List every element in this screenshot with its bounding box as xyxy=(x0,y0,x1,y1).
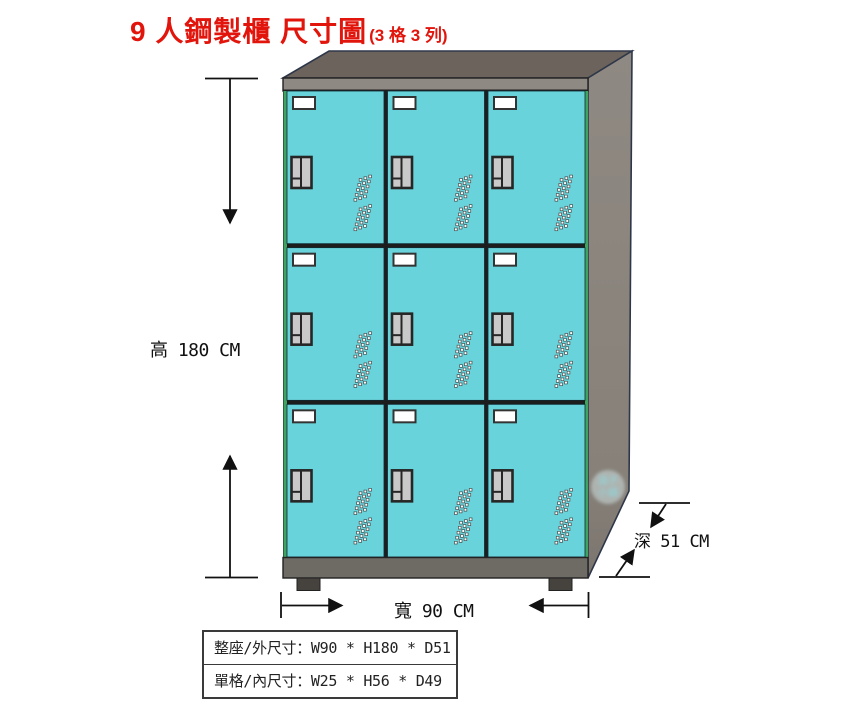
door-name-card-holder xyxy=(494,97,516,109)
vent-hole xyxy=(562,500,565,503)
vent-hole xyxy=(369,518,372,521)
vent-hole xyxy=(464,508,467,511)
vent-hole xyxy=(565,381,568,384)
vent-hole xyxy=(465,333,468,336)
vent-hole xyxy=(561,192,564,195)
vent-hole xyxy=(355,350,358,353)
vent-hole xyxy=(457,502,460,505)
vent-hole xyxy=(567,215,570,218)
vent-hole xyxy=(459,226,462,229)
vent-hole xyxy=(359,179,362,182)
vent-hole xyxy=(469,205,472,208)
vent-hole xyxy=(456,507,459,510)
door-handle xyxy=(493,314,513,345)
locker-door xyxy=(287,91,384,244)
vent-hole xyxy=(469,518,472,521)
vent-hole xyxy=(459,540,462,543)
vent-hole xyxy=(366,342,369,345)
door-handle xyxy=(392,157,412,188)
vent-hole xyxy=(562,187,565,190)
vent-hole xyxy=(562,343,565,346)
vent-hole xyxy=(459,197,462,200)
vent-hole xyxy=(555,512,558,515)
vent-hole xyxy=(465,490,468,493)
vent-hole xyxy=(364,538,367,541)
vent-hole xyxy=(570,205,573,208)
vent-hole xyxy=(561,378,564,381)
vent-hole xyxy=(463,338,466,341)
vent-hole xyxy=(560,197,563,200)
vent-hole xyxy=(567,342,570,345)
vent-hole xyxy=(465,220,468,223)
vent-hole xyxy=(567,498,570,501)
vent-hole xyxy=(464,225,467,228)
vent-hole xyxy=(457,375,460,378)
vent-hole xyxy=(360,192,363,195)
vent-hole xyxy=(359,197,362,200)
vent-hole xyxy=(369,488,372,491)
width-dimension-label: 寬 90 CM xyxy=(394,597,474,623)
frame-right-green-edge xyxy=(585,91,588,557)
diagram-page: 9 人鋼製櫃 尺寸圖(3 格 3 列) xyxy=(0,0,856,720)
door-handle xyxy=(493,470,513,501)
vent-hole xyxy=(455,385,458,388)
vent-hole xyxy=(560,492,563,495)
vent-hole xyxy=(366,185,369,188)
vent-hole xyxy=(456,536,459,539)
vent-hole xyxy=(562,373,565,376)
vent-hole xyxy=(558,502,561,505)
vent-hole xyxy=(559,370,562,373)
vent-hole xyxy=(560,208,563,211)
vent-hole xyxy=(565,538,568,541)
vent-hole xyxy=(467,215,470,218)
door-name-card-holder xyxy=(394,97,416,109)
vent-hole xyxy=(561,221,564,224)
vent-hole xyxy=(459,510,462,513)
vent-hole xyxy=(364,206,367,209)
vent-hole xyxy=(560,365,563,368)
door-name-card-holder xyxy=(494,410,516,422)
vent-hole xyxy=(358,184,361,187)
vent-hole xyxy=(460,179,463,182)
vent-hole xyxy=(560,353,563,356)
vent-hole xyxy=(569,210,572,213)
vent-hole xyxy=(564,525,567,528)
vent-hole xyxy=(556,223,559,226)
vent-hole xyxy=(468,366,471,369)
vent-hole xyxy=(363,182,366,185)
door-handle xyxy=(292,157,312,188)
watermark-line1: 過子 xyxy=(598,475,618,487)
vent-hole xyxy=(465,347,468,350)
vent-hole xyxy=(465,520,468,523)
vent-hole xyxy=(359,335,362,338)
locker-door xyxy=(388,404,485,557)
vent-hole xyxy=(463,525,466,528)
cabinet-base xyxy=(283,558,588,579)
vent-hole xyxy=(364,333,367,336)
vent-hole xyxy=(566,533,569,536)
locker-door xyxy=(488,404,585,557)
vent-hole xyxy=(358,497,361,500)
vent-hole xyxy=(364,490,367,493)
vent-hole xyxy=(364,177,367,180)
vent-hole xyxy=(366,215,369,218)
vent-hole xyxy=(467,185,470,188)
vent-hole xyxy=(354,199,357,202)
vent-hole xyxy=(355,380,358,383)
vent-hole xyxy=(556,380,559,383)
vent-hole xyxy=(567,371,570,374)
vent-hole xyxy=(364,508,367,511)
vent-hole xyxy=(366,498,369,501)
vent-hole xyxy=(359,521,362,524)
vent-hole xyxy=(365,533,368,536)
vent-hole xyxy=(569,366,572,369)
vent-hole xyxy=(358,526,361,529)
vent-hole xyxy=(354,228,357,231)
vent-hole xyxy=(570,488,573,491)
vent-hole xyxy=(364,225,367,228)
vent-hole xyxy=(569,493,572,496)
door-handle xyxy=(493,157,513,188)
vent-hole xyxy=(462,343,465,346)
vent-hole xyxy=(555,228,558,231)
vent-hole xyxy=(468,180,471,183)
vent-hole xyxy=(464,538,467,541)
vent-hole xyxy=(359,510,362,513)
vent-hole xyxy=(464,352,467,355)
locker-door xyxy=(488,248,585,401)
vent-hole xyxy=(458,184,461,187)
watermark-logo: 過子 小舖 xyxy=(591,470,625,504)
vent-hole xyxy=(462,187,465,190)
vent-hole xyxy=(456,380,459,383)
vent-hole xyxy=(558,375,561,378)
vent-hole xyxy=(555,541,558,544)
vent-hole xyxy=(558,531,561,534)
vent-hole xyxy=(355,223,358,226)
vent-hole xyxy=(559,497,562,500)
vent-hole xyxy=(365,503,368,506)
cabinet-top-front-strip xyxy=(283,78,588,91)
vent-hole xyxy=(354,541,357,544)
door-name-card-holder xyxy=(494,254,516,266)
door-handle xyxy=(292,470,312,501)
vent-hole xyxy=(463,182,466,185)
vent-hole xyxy=(458,497,461,500)
vent-hole xyxy=(363,495,366,498)
vent-hole xyxy=(365,220,368,223)
vent-hole xyxy=(561,348,564,351)
vent-hole xyxy=(365,190,368,193)
vent-hole xyxy=(458,340,461,343)
vent-hole xyxy=(461,535,464,538)
vent-hole xyxy=(359,492,362,495)
locker-door xyxy=(488,91,585,244)
vent-hole xyxy=(555,199,558,202)
vent-hole xyxy=(455,228,458,231)
vent-hole xyxy=(566,376,569,379)
vent-hole xyxy=(358,370,361,373)
vent-hole xyxy=(459,353,462,356)
vent-hole xyxy=(462,373,465,376)
vent-hole xyxy=(570,361,573,364)
vent-hole xyxy=(570,332,573,335)
vent-hole xyxy=(559,213,562,216)
locker-door xyxy=(287,248,384,401)
vent-hole xyxy=(555,355,558,358)
vent-hole xyxy=(467,371,470,374)
vent-hole xyxy=(366,528,369,531)
vent-hole xyxy=(468,337,471,340)
vent-hole xyxy=(560,226,563,229)
vent-hole xyxy=(359,208,362,211)
vent-hole xyxy=(468,523,471,526)
vent-hole xyxy=(360,348,363,351)
vent-hole xyxy=(460,335,463,338)
vent-hole xyxy=(355,507,358,510)
vent-hole xyxy=(460,208,463,211)
depth-dimension-label: 深 51 CM xyxy=(634,527,709,552)
vent-hole xyxy=(355,536,358,539)
vent-hole xyxy=(566,347,569,350)
door-handle xyxy=(392,314,412,345)
vent-hole xyxy=(460,365,463,368)
vent-hole xyxy=(369,175,372,178)
vent-hole xyxy=(456,350,459,353)
vent-hole xyxy=(556,507,559,510)
vent-hole xyxy=(361,216,364,219)
vent-hole xyxy=(357,189,360,192)
vent-hole xyxy=(560,179,563,182)
vent-hole xyxy=(364,520,367,523)
vent-hole xyxy=(461,505,464,508)
vent-hole xyxy=(556,350,559,353)
vent-hole xyxy=(559,184,562,187)
vent-hole xyxy=(360,505,363,508)
cabinet-foot-right xyxy=(549,578,572,591)
vent-hole xyxy=(562,216,565,219)
height-dimension-label: 高 180 CM xyxy=(150,336,240,362)
vent-hole xyxy=(570,175,573,178)
vent-hole xyxy=(457,189,460,192)
vent-hole xyxy=(465,363,468,366)
vent-hole xyxy=(564,368,567,371)
vent-hole xyxy=(357,218,360,221)
vent-hole xyxy=(361,343,364,346)
door-name-card-holder xyxy=(394,410,416,422)
vent-hole xyxy=(564,495,567,498)
vent-hole xyxy=(359,383,362,386)
vent-hole xyxy=(560,521,563,524)
door-handle xyxy=(392,470,412,501)
vent-hole xyxy=(359,365,362,368)
vent-hole xyxy=(467,528,470,531)
watermark-line2: 小舖 xyxy=(598,486,618,499)
vent-hole xyxy=(558,189,561,192)
vent-hole xyxy=(558,218,561,221)
vent-hole xyxy=(469,332,472,335)
vent-hole xyxy=(361,500,364,503)
vent-hole xyxy=(467,342,470,345)
vent-hole xyxy=(469,488,472,491)
vent-hole xyxy=(562,530,565,533)
vent-hole xyxy=(457,218,460,221)
vent-hole xyxy=(565,520,568,523)
vent-hole xyxy=(566,503,569,506)
depth-arrow-downleft xyxy=(651,504,666,527)
vent-hole xyxy=(462,216,465,219)
vent-hole xyxy=(461,348,464,351)
vent-hole xyxy=(469,361,472,364)
vent-hole xyxy=(565,225,568,228)
vent-hole xyxy=(361,373,364,376)
vent-hole xyxy=(464,381,467,384)
vent-hole xyxy=(457,531,460,534)
depth-arrow-upright xyxy=(616,550,634,576)
height-dimension xyxy=(205,79,258,578)
vent-hole xyxy=(565,195,568,198)
vent-hole xyxy=(463,495,466,498)
vent-hole xyxy=(359,226,362,229)
vent-hole xyxy=(567,185,570,188)
vent-hole xyxy=(464,195,467,198)
vent-hole xyxy=(566,220,569,223)
vent-hole xyxy=(565,490,568,493)
vent-hole xyxy=(560,383,563,386)
vent-hole xyxy=(465,533,468,536)
vent-hole xyxy=(565,177,568,180)
vent-hole xyxy=(455,512,458,515)
vent-hole xyxy=(462,500,465,503)
locker-door xyxy=(388,91,485,244)
vent-hole xyxy=(465,177,468,180)
vent-hole xyxy=(467,498,470,501)
vent-hole xyxy=(365,376,368,379)
vent-hole xyxy=(455,199,458,202)
vent-hole xyxy=(369,361,372,364)
vent-hole xyxy=(569,523,572,526)
vent-hole xyxy=(360,221,363,224)
vent-hole xyxy=(368,210,371,213)
door-name-card-holder xyxy=(293,97,315,109)
vent-hole xyxy=(565,363,568,366)
vent-hole xyxy=(560,540,563,543)
vent-hole xyxy=(465,376,468,379)
vent-hole xyxy=(458,370,461,373)
vent-hole xyxy=(465,190,468,193)
vent-hole xyxy=(357,375,360,378)
vent-hole xyxy=(459,383,462,386)
vent-hole xyxy=(567,528,570,531)
vent-hole xyxy=(468,210,471,213)
spec-row-inner-size: 單格/內尺寸：W25 * H56 * D49 xyxy=(204,664,456,697)
vent-hole xyxy=(359,353,362,356)
locker-door xyxy=(287,404,384,557)
vent-hole xyxy=(457,345,460,348)
locker-door xyxy=(388,248,485,401)
vent-hole xyxy=(570,518,573,521)
vent-hole xyxy=(455,355,458,358)
cabinet-foot-left xyxy=(297,578,320,591)
vent-hole xyxy=(463,211,466,214)
vent-hole xyxy=(364,195,367,198)
vent-hole xyxy=(364,363,367,366)
vent-hole xyxy=(560,335,563,338)
vent-hole xyxy=(369,332,372,335)
vent-hole xyxy=(456,223,459,226)
vent-hole xyxy=(366,371,369,374)
vent-hole xyxy=(462,530,465,533)
vent-hole xyxy=(561,535,564,538)
spec-row-outer-size: 整座/外尺寸：W90 * H180 * D51 xyxy=(204,632,456,664)
vent-hole xyxy=(361,187,364,190)
vent-hole xyxy=(368,366,371,369)
vent-hole xyxy=(354,355,357,358)
vent-hole xyxy=(358,340,361,343)
vent-hole xyxy=(558,345,561,348)
vent-hole xyxy=(460,492,463,495)
vent-hole xyxy=(565,508,568,511)
vent-hole xyxy=(468,493,471,496)
vent-hole xyxy=(565,333,568,336)
vent-hole xyxy=(363,368,366,371)
vent-hole xyxy=(369,205,372,208)
vent-hole xyxy=(569,180,572,183)
vent-hole xyxy=(363,211,366,214)
vent-hole xyxy=(458,213,461,216)
vent-hole xyxy=(360,378,363,381)
locker-doors xyxy=(287,91,585,557)
vent-hole xyxy=(559,526,562,529)
door-name-card-holder xyxy=(394,254,416,266)
vent-hole xyxy=(560,510,563,513)
vent-hole xyxy=(565,352,568,355)
vent-hole xyxy=(456,194,459,197)
vent-hole xyxy=(461,378,464,381)
vent-hole xyxy=(357,531,360,534)
vent-hole xyxy=(561,505,564,508)
vent-hole xyxy=(360,535,363,538)
vent-hole xyxy=(363,338,366,341)
vent-hole xyxy=(358,213,361,216)
vent-hole xyxy=(461,221,464,224)
vent-hole xyxy=(566,190,569,193)
vent-hole xyxy=(556,536,559,539)
vent-hole xyxy=(364,381,367,384)
cabinet-top-face xyxy=(283,51,632,78)
vent-hole xyxy=(569,337,572,340)
vent-hole xyxy=(556,194,559,197)
vent-hole xyxy=(354,385,357,388)
vent-hole xyxy=(460,521,463,524)
vent-hole xyxy=(463,368,466,371)
vent-hole xyxy=(363,525,366,528)
vent-hole xyxy=(364,352,367,355)
vent-hole xyxy=(465,206,468,209)
vent-hole xyxy=(368,523,371,526)
spec-table: 整座/外尺寸：W90 * H180 * D51 單格/內尺寸：W25 * H56… xyxy=(202,630,458,699)
vent-hole xyxy=(555,385,558,388)
vent-hole xyxy=(359,540,362,543)
vent-hole xyxy=(354,512,357,515)
vent-hole xyxy=(564,338,567,341)
vent-hole xyxy=(361,530,364,533)
door-handle xyxy=(292,314,312,345)
vent-hole xyxy=(357,345,360,348)
